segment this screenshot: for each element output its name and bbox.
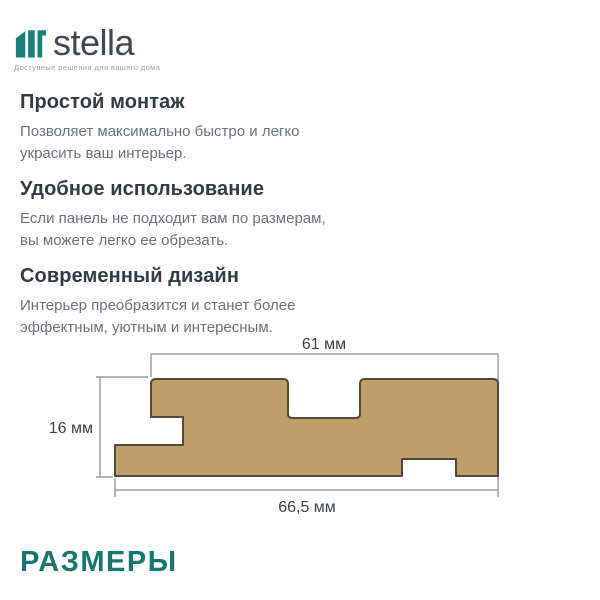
panel-profile	[115, 379, 498, 476]
page: stella Доступные решения для вашего дома…	[0, 0, 600, 600]
dimension-height-label: 16 мм	[49, 420, 93, 437]
panel-cross-section-shape	[115, 379, 498, 476]
dimension-top-width-label: 61 мм	[302, 336, 346, 353]
panel-dimension-diagram: 61 мм 16 мм 66,5 мм	[0, 0, 600, 600]
sizes-section-title: РАЗМЕРЫ	[20, 546, 178, 579]
dimension-bottom-width-label: 66,5 мм	[278, 499, 336, 516]
